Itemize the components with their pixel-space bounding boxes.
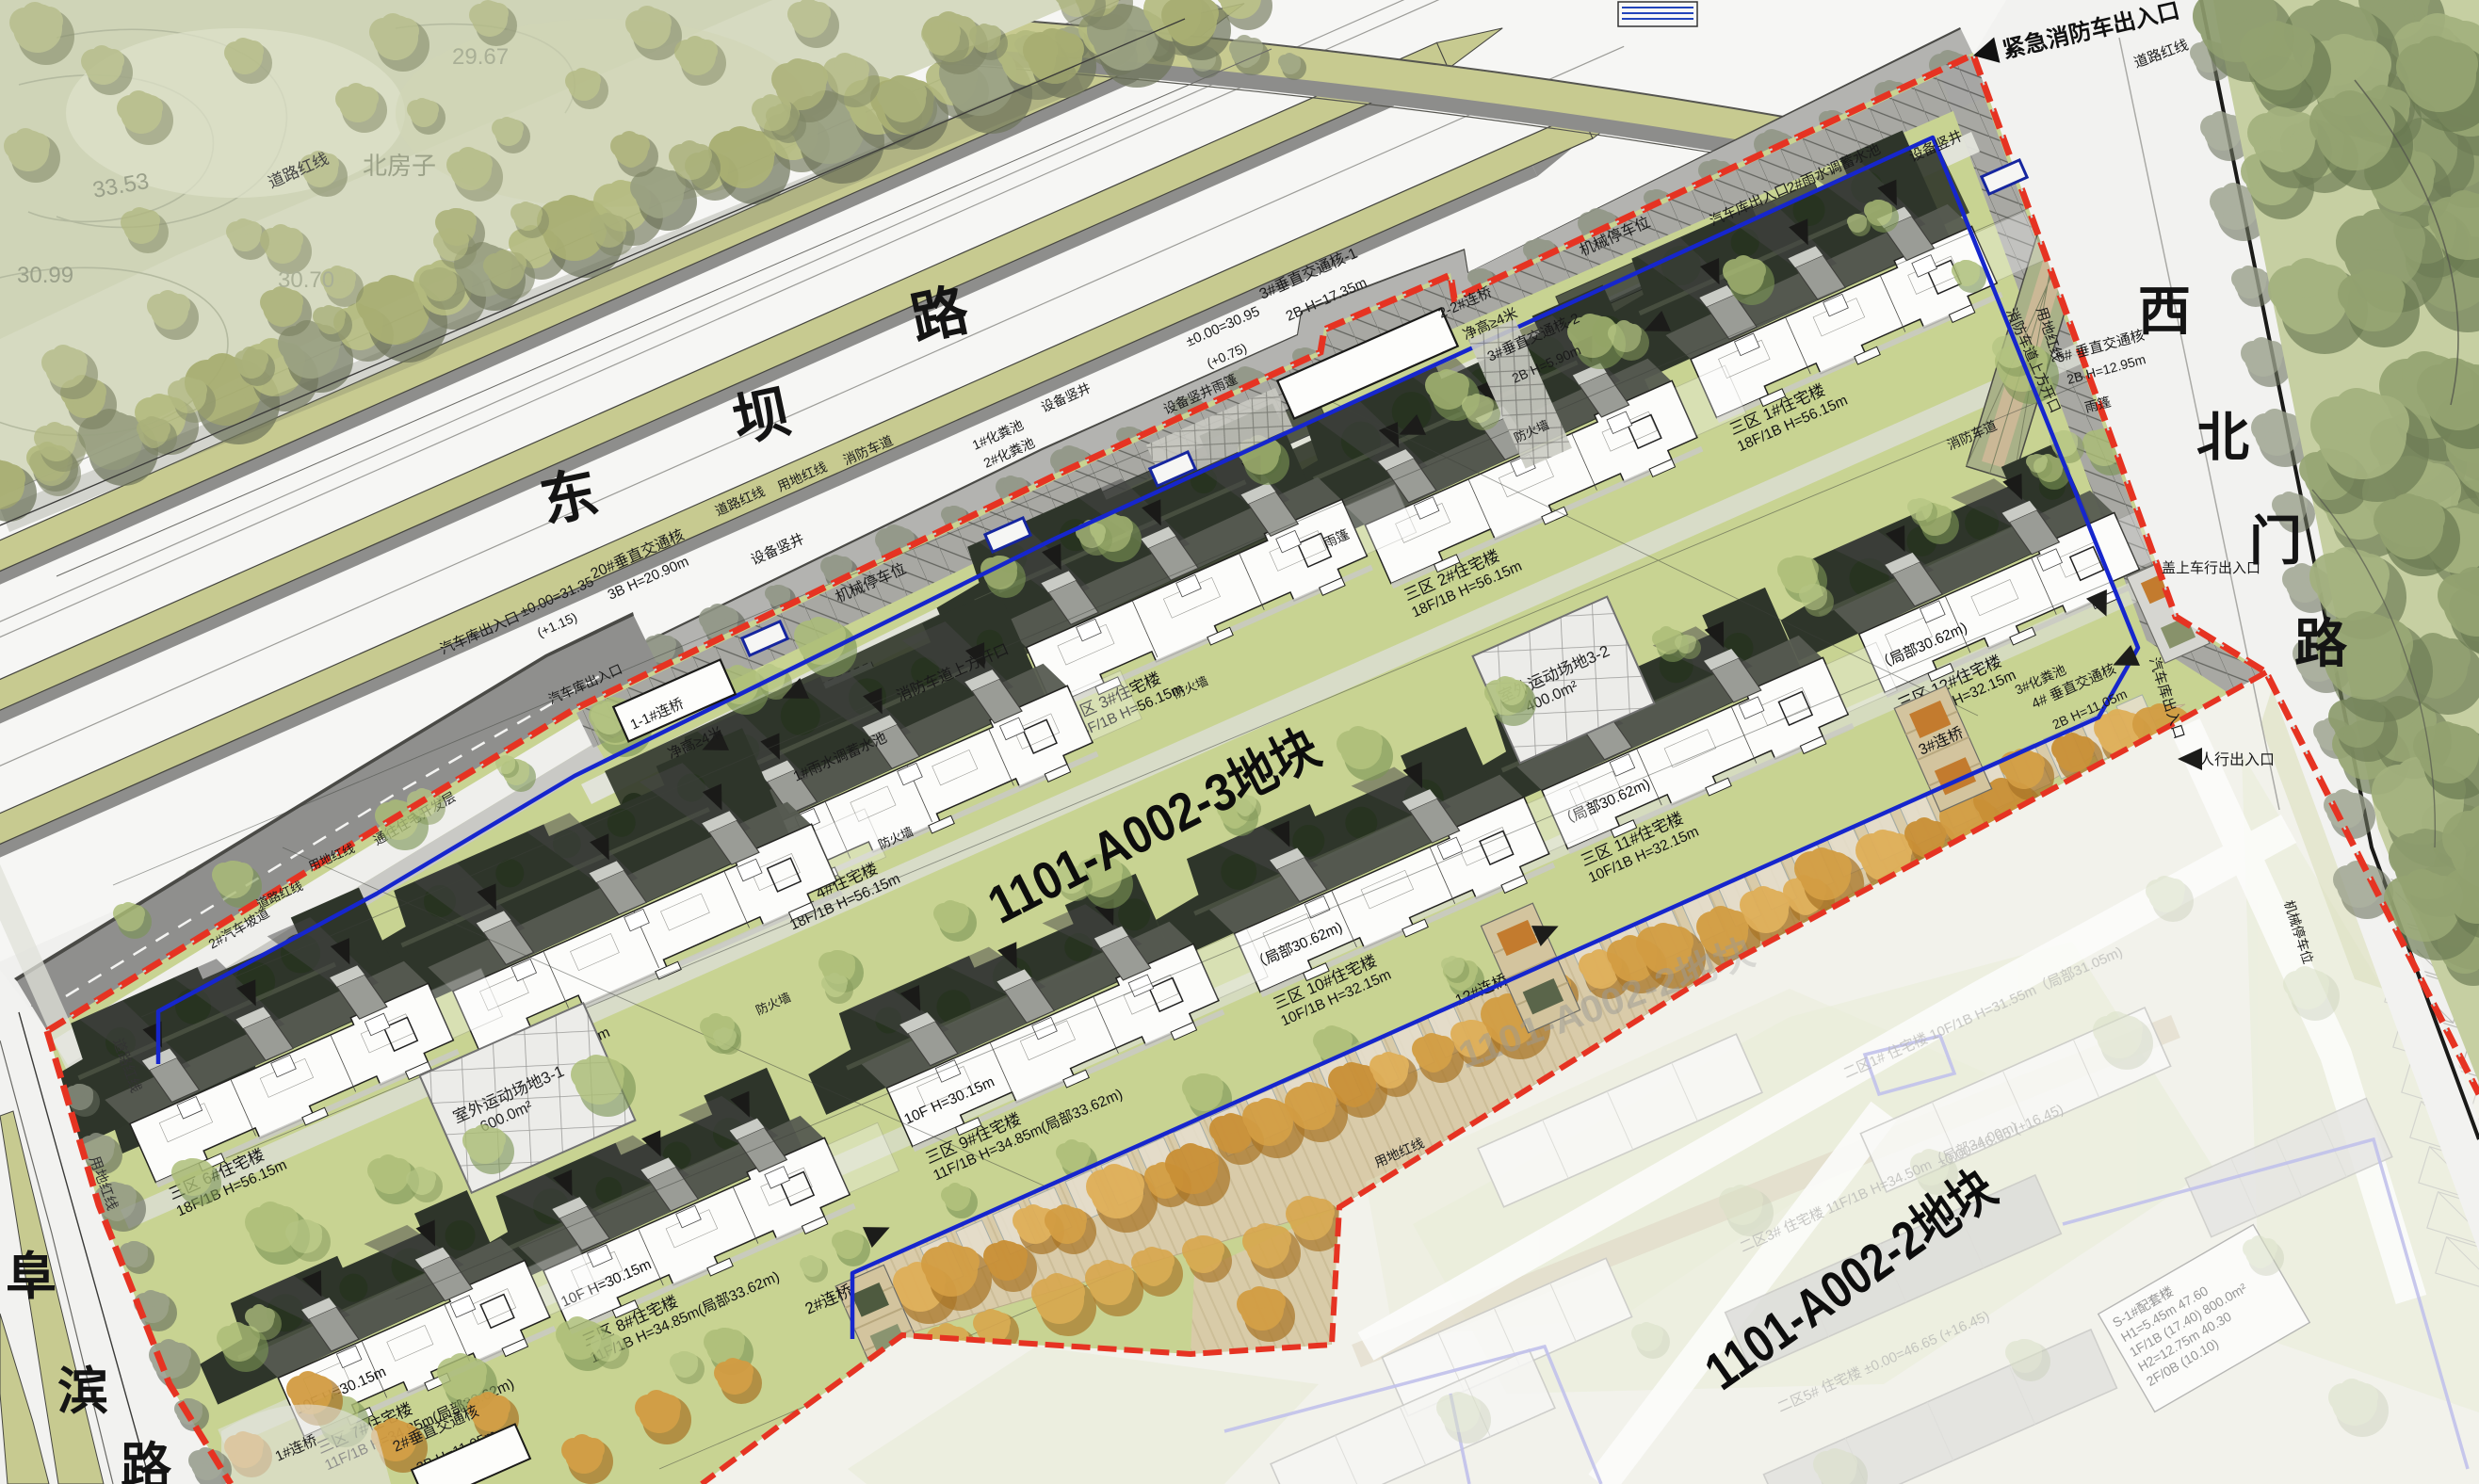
svg-text:北房子: 北房子 [363, 152, 436, 180]
svg-text:30.70: 30.70 [278, 267, 334, 293]
svg-text:路: 路 [2294, 614, 2348, 673]
svg-text:阜: 阜 [6, 1249, 57, 1305]
svg-text:滨: 滨 [57, 1363, 108, 1420]
svg-text:30.99: 30.99 [17, 263, 73, 288]
svg-text:29.67: 29.67 [452, 44, 509, 70]
svg-text:盖上车行出入口: 盖上车行出入口 [2162, 560, 2260, 576]
svg-text:门: 门 [2249, 511, 2302, 571]
svg-text:北: 北 [2196, 408, 2249, 467]
svg-text:西: 西 [2138, 282, 2191, 341]
svg-text:路: 路 [121, 1439, 172, 1484]
svg-text:人行出入口: 人行出入口 [2199, 751, 2275, 768]
